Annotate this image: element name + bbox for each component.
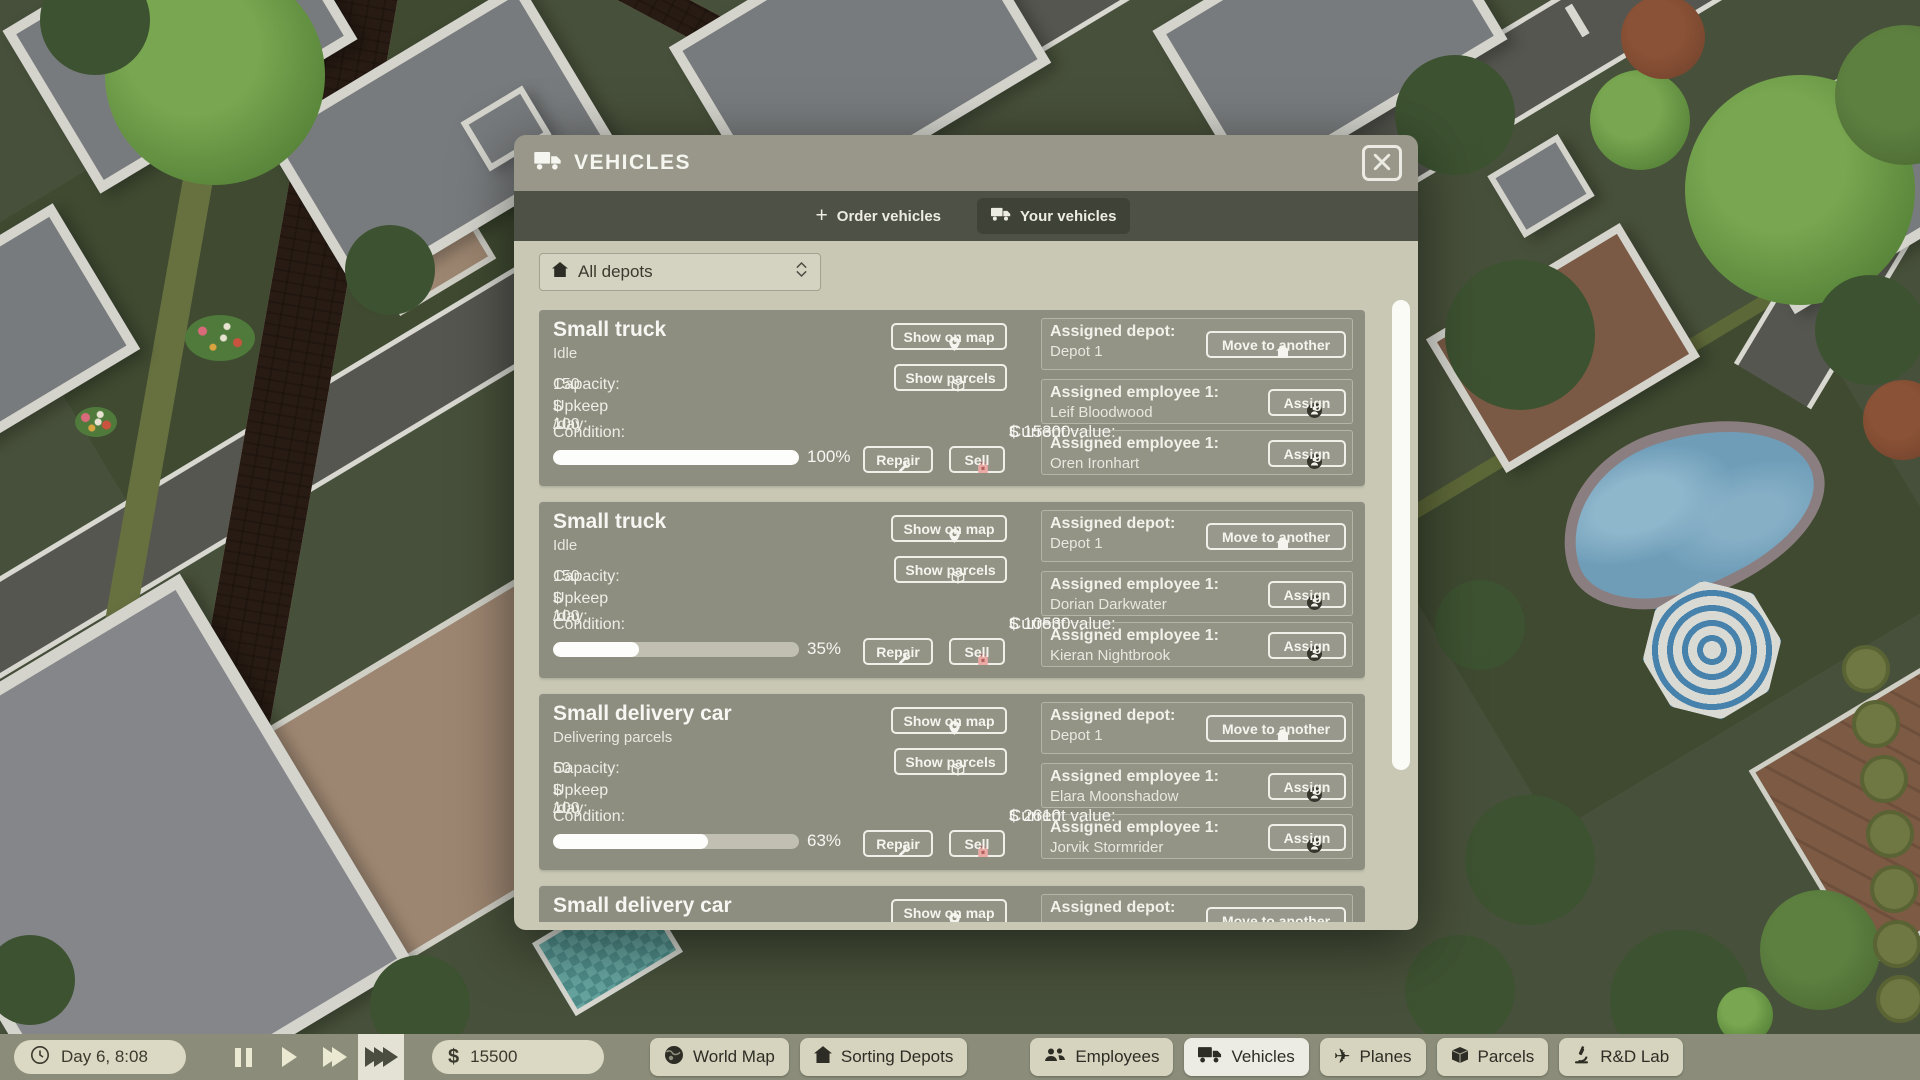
money-text: 15500 — [470, 1047, 517, 1067]
move-to-another-button[interactable]: Move to another — [1206, 331, 1346, 358]
assigned-employee-row: Assigned employee 1: Oren Ironhart Assig… — [1041, 430, 1353, 475]
dialog-title: VEHICLES — [534, 151, 691, 176]
assign-button[interactable]: Assign — [1268, 773, 1346, 800]
map-flower-bed — [185, 315, 255, 361]
assigned-employee-row: Assigned employee 1: Jorvik Stormrider A… — [1041, 814, 1353, 859]
vehicle-name: Small delivery car — [553, 702, 732, 726]
play-button[interactable] — [266, 1034, 312, 1080]
map-flower-bed — [75, 407, 117, 437]
globe-icon — [664, 1045, 684, 1070]
play-icon — [282, 1047, 297, 1067]
map-bush — [1873, 920, 1920, 968]
assigned-employee-row: Assigned employee 1: Elara Moonshadow As… — [1041, 763, 1353, 808]
condition-bar — [553, 834, 799, 849]
vehicle-card: Small delivery car Delivering parcels Ca… — [539, 694, 1365, 870]
repair-button[interactable]: Repair — [863, 446, 933, 473]
tab-your-vehicles[interactable]: Your vehicles — [977, 198, 1130, 234]
condition-percent: 35% — [807, 639, 841, 659]
nav-employees[interactable]: Employees — [1030, 1038, 1173, 1076]
map-bush — [1842, 645, 1890, 693]
assignment-column: Assigned depot: Depot 1 Move to another … — [1041, 510, 1353, 670]
show-parcels-button[interactable]: Show parcels — [894, 364, 1007, 391]
speed-controls — [220, 1034, 404, 1080]
parcel-box-icon — [1451, 1046, 1469, 1069]
dialog-tab-bar: + Order vehicles Your vehicles — [514, 191, 1418, 241]
vehicle-name: Small delivery car — [553, 894, 732, 918]
show-on-map-button[interactable]: Show on map — [891, 323, 1007, 350]
plane-icon: ✈ — [1334, 1047, 1351, 1067]
assigned-employee-row: Assigned employee 1: Dorian Darkwater As… — [1041, 571, 1353, 616]
assign-button[interactable]: Assign — [1268, 824, 1346, 851]
vehicle-card: Small truck Idle Capacity:150 Upkeep /da… — [539, 502, 1365, 678]
vehicle-status: Delivering parcels — [553, 729, 672, 746]
assigned-depot-row: Assigned depot: Depot 1 Move to another — [1041, 318, 1353, 370]
nav-parcels[interactable]: Parcels — [1437, 1038, 1549, 1076]
vehicle-list: Small truck Idle Capacity:150 Upkeep /da… — [539, 310, 1365, 922]
vehicle-status: Idle — [553, 537, 577, 554]
sell-button[interactable]: Sell — [949, 830, 1005, 857]
condition-bar — [553, 450, 799, 465]
condition-label: Condition: — [553, 616, 625, 634]
game-screen: VEHICLES + Order vehicles Your vehicles — [0, 0, 1920, 1080]
date-text: Day 6, 8:08 — [61, 1047, 148, 1067]
bottom-toolbar: Day 6, 8:08 $ 15500 World Map Sorting De… — [0, 1034, 1920, 1080]
microscope-icon — [1573, 1046, 1591, 1069]
pause-icon — [235, 1048, 252, 1067]
move-to-another-button[interactable]: Move to another — [1206, 523, 1346, 550]
assigned-depot-row: Assigned depot: Move to another — [1041, 894, 1353, 922]
show-on-map-button[interactable]: Show on map — [891, 899, 1007, 922]
move-to-another-button[interactable]: Move to another — [1206, 907, 1346, 922]
sell-button[interactable]: Sell — [949, 446, 1005, 473]
nav-rnd-lab[interactable]: R&D Lab — [1559, 1038, 1683, 1076]
assigned-depot-row: Assigned depot: Depot 1 Move to another — [1041, 510, 1353, 562]
toolbar-nav: World Map Sorting Depots Employees Vehic… — [650, 1034, 1683, 1080]
assign-button[interactable]: Assign — [1268, 581, 1346, 608]
dollar-icon: $ — [448, 1046, 459, 1069]
sell-button[interactable]: Sell — [949, 638, 1005, 665]
map-tree — [1405, 935, 1515, 1045]
assignment-column: Assigned depot: Depot 1 Move to another … — [1041, 318, 1353, 478]
map-tree — [1590, 70, 1690, 170]
chevron-up-down-icon — [795, 261, 808, 283]
map-bush — [1860, 755, 1908, 803]
map-tree-autumn — [1621, 0, 1705, 79]
plus-icon: + — [816, 209, 828, 223]
move-to-another-button[interactable]: Move to another — [1206, 715, 1346, 742]
dialog-header: VEHICLES — [514, 135, 1418, 191]
vehicle-status: Idle — [553, 345, 577, 362]
fastest-icon — [365, 1047, 398, 1067]
map-tree — [1760, 890, 1880, 1010]
tab-order-vehicles[interactable]: + Order vehicles — [802, 199, 956, 234]
clock-icon — [30, 1045, 50, 1070]
map-bush — [1876, 975, 1920, 1023]
nav-vehicles[interactable]: Vehicles — [1184, 1038, 1308, 1076]
fast-forward-button[interactable] — [312, 1034, 358, 1080]
vehicles-dialog: VEHICLES + Order vehicles Your vehicles — [514, 135, 1418, 930]
condition-label: Condition: — [553, 424, 625, 442]
show-parcels-button[interactable]: Show parcels — [894, 556, 1007, 583]
close-button[interactable] — [1362, 145, 1402, 181]
repair-button[interactable]: Repair — [863, 638, 933, 665]
condition-percent: 63% — [807, 831, 841, 851]
map-bush — [1852, 700, 1900, 748]
nav-sorting-depots[interactable]: Sorting Depots — [800, 1038, 967, 1076]
vehicle-card: Small truck Idle Capacity:150 Upkeep /da… — [539, 310, 1365, 486]
vehicle-name: Small truck — [553, 318, 666, 342]
fastest-speed-button[interactable] — [358, 1034, 404, 1080]
show-parcels-button[interactable]: Show parcels — [894, 748, 1007, 775]
fast-forward-icon — [323, 1047, 347, 1067]
truck-icon — [1198, 1046, 1222, 1068]
assigned-depot-row: Assigned depot: Depot 1 Move to another — [1041, 702, 1353, 754]
date-display: Day 6, 8:08 — [14, 1040, 186, 1074]
map-bush — [1870, 865, 1918, 913]
depot-filter-dropdown[interactable]: All depots — [539, 253, 821, 291]
assign-button[interactable]: Assign — [1268, 440, 1346, 467]
truck-icon — [534, 151, 562, 176]
close-icon — [1373, 153, 1391, 174]
map-tree — [1465, 795, 1595, 925]
condition-bar — [553, 642, 799, 657]
condition-label: Condition: — [553, 808, 625, 826]
dialog-body: All depots Small truck Idle Capacity:150… — [514, 241, 1418, 930]
truck-icon — [991, 207, 1011, 225]
map-tree — [1445, 260, 1595, 410]
condition-percent: 100% — [807, 447, 850, 467]
house-icon — [814, 1046, 832, 1068]
map-tree — [1815, 275, 1920, 385]
assign-button[interactable]: Assign — [1268, 389, 1346, 416]
assigned-employee-row: Assigned employee 1: Leif Bloodwood Assi… — [1041, 379, 1353, 424]
nav-planes[interactable]: ✈ Planes — [1320, 1038, 1426, 1076]
vehicle-name: Small truck — [553, 510, 666, 534]
assignment-column: Assigned depot: Depot 1 Move to another … — [1041, 702, 1353, 862]
assigned-employee-row: Assigned employee 1: Kieran Nightbrook A… — [1041, 622, 1353, 667]
map-tree — [1435, 580, 1525, 670]
nav-world-map[interactable]: World Map — [650, 1038, 789, 1076]
dialog-title-text: VEHICLES — [574, 151, 691, 175]
assignment-column: Assigned depot: Move to another — [1041, 894, 1353, 922]
scrollbar[interactable] — [1392, 300, 1410, 770]
money-display: $ 15500 — [432, 1040, 604, 1074]
home-icon — [552, 262, 568, 282]
people-icon — [1044, 1047, 1066, 1068]
show-on-map-button[interactable]: Show on map — [891, 515, 1007, 542]
assign-button[interactable]: Assign — [1268, 632, 1346, 659]
depot-filter-value: All depots — [578, 262, 653, 282]
show-on-map-button[interactable]: Show on map — [891, 707, 1007, 734]
pause-button[interactable] — [220, 1034, 266, 1080]
map-tree — [345, 225, 435, 315]
map-bush — [1866, 810, 1914, 858]
repair-button[interactable]: Repair — [863, 830, 933, 857]
vehicle-card: Small delivery car Show on map Assigned … — [539, 886, 1365, 922]
